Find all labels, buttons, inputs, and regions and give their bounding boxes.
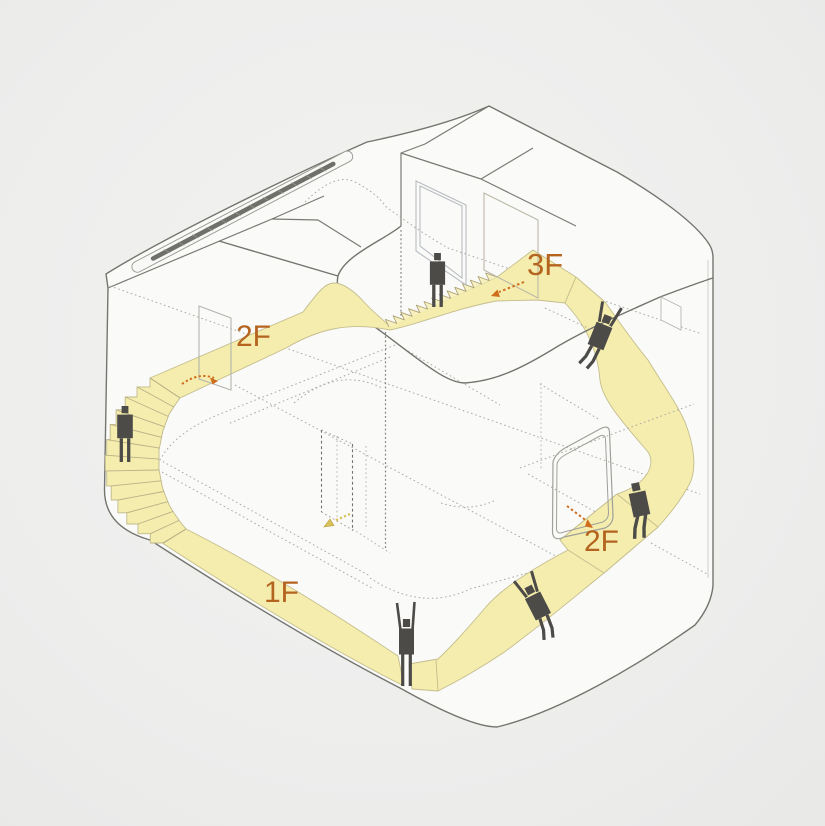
svg-text:2F: 2F (584, 525, 619, 558)
svg-text:1F: 1F (264, 576, 299, 609)
svg-text:2F: 2F (236, 320, 271, 353)
svg-text:3F: 3F (527, 247, 563, 282)
